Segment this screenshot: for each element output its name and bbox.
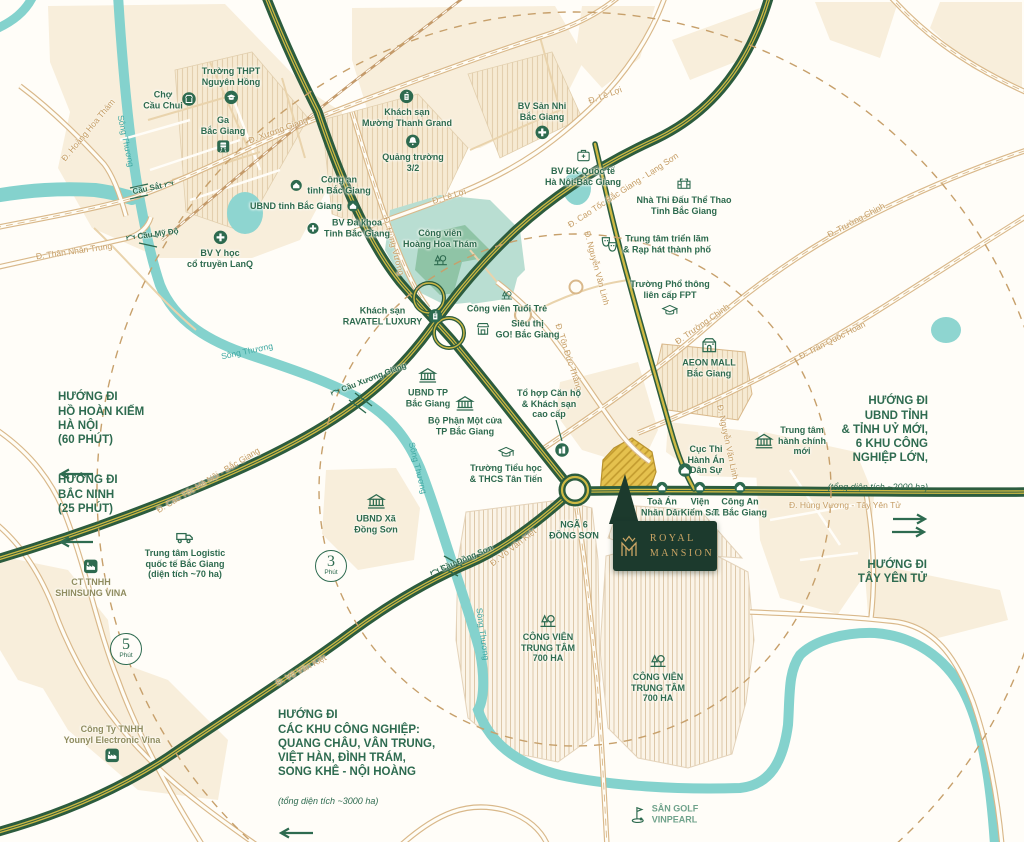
hospital-cross-icon — [306, 221, 320, 235]
factory-icon — [103, 747, 120, 764]
right-arrow-icon — [891, 526, 927, 538]
bridge-icon — [125, 231, 136, 242]
graduation-cap-icon — [498, 444, 515, 461]
poi-bo-phan-mot-cua: Bộ Phận Một cửa TP Bắc Giang — [428, 393, 502, 436]
poi-muong-thanh-grand: Khách sạn Mường Thanh Grand — [362, 88, 452, 128]
poi-ubnd-xa-dong-son: UBND Xã Đồng Sơn — [354, 491, 397, 534]
hotel-icon — [398, 88, 415, 105]
tree-icon — [648, 650, 668, 670]
royal-mansion-logo: ROYAL MANSION — [613, 521, 717, 571]
house-icon — [693, 480, 707, 494]
poi-aeon-mall: AEON MALL Bắc Giang — [682, 335, 736, 378]
left-arrow-icon — [278, 827, 314, 839]
poi-bv-da-khoa: BV Đa khoa Tỉnh Bắc Giang — [306, 217, 390, 238]
poi-cong-an-tinh: Công an tỉnh Bắc Giang — [289, 174, 371, 195]
golf-flag-icon — [628, 804, 648, 824]
poi-cong-vien-hoang-hoa-tham: Công viên Hoàng Hoa Thám — [403, 228, 477, 268]
government-building-icon — [366, 491, 386, 511]
poi-cong-an-t-bac-giang: Công An T. Bắc Giang — [713, 480, 767, 517]
poi-shinsung-vina: CT TNHH SHINSUNG VINA — [55, 558, 127, 598]
mall-icon — [699, 335, 719, 355]
poi-san-golf-vinpearl: SÂN GOLF VINPEARL — [628, 803, 699, 824]
location-map: Chợ Cầu Chui Trường THPT Nguyên Hồng Ga … — [0, 0, 1024, 842]
poi-truong-thpt-nguyen-hong: Trường THPT Nguyên Hồng — [202, 66, 261, 106]
bridge-icon — [163, 178, 175, 190]
direction-bac-ninh: HƯỚNG ĐI BẮC NINH (25 PHÚT) — [58, 459, 118, 563]
poi-truong-tan-tien: Trường Tiểu học & THCS Tân Tiến — [470, 444, 543, 484]
house-icon — [289, 178, 303, 192]
callout-pointer — [598, 468, 648, 528]
poi-nha-thi-dau: Nhà Thi Đấu Thể Thao Tỉnh Bắc Giang — [636, 176, 731, 216]
poi-cong-vien-trung-tam-2: CÔNG VIÊN TRUNG TÂM 700 HA — [631, 650, 685, 704]
hospital-cross-icon — [533, 124, 550, 141]
tree-icon — [538, 610, 558, 630]
hotel-icon — [426, 308, 443, 325]
poi-ubnd-tinh: UBND tỉnh Bắc Giang — [250, 199, 360, 213]
school-icon — [223, 89, 240, 106]
hospital-cross-icon — [211, 229, 228, 246]
tree-icon — [500, 288, 514, 302]
left-arrow-icon — [58, 536, 94, 548]
poi-younyl-electronic: Công Ty TNHH Younyl Electronic Vina — [64, 724, 161, 764]
badge-5-minutes: 5 Phút — [110, 633, 142, 665]
house-icon — [346, 199, 360, 213]
poi-logistic-center: Trung tâm Logistic quốc tế Bắc Giang (di… — [145, 526, 226, 580]
government-building-icon — [418, 365, 438, 385]
poi-bv-san-nhi: BV Sản Nhi Bắc Giang — [518, 101, 567, 141]
royal-mansion-monogram-icon — [616, 533, 642, 559]
poi-cong-vien-trung-tam-1: CÔNG VIÊN TRUNG TÂM 700 HA — [521, 610, 575, 664]
poi-trien-lam-rap-hat: Trung tâm triển lãm & Rạp hát thành phố — [599, 233, 711, 254]
poi-ga-bac-giang: Ga Bắc Giang — [201, 115, 246, 155]
poi-to-hop-can-ho: Tổ hợp Căn hộ & Khách sạn cao cấp — [517, 388, 581, 420]
apartment-icon — [554, 442, 571, 459]
truck-icon — [175, 526, 195, 546]
theater-masks-icon — [599, 234, 619, 254]
bell-icon — [404, 133, 421, 150]
government-building-icon — [754, 431, 774, 451]
graduation-cap-icon — [662, 302, 679, 319]
poi-cho-cau-chui: Chợ Cầu Chui — [143, 89, 183, 110]
poi-bv-quoc-te: BV ĐK Quốc tế Hà Nội-Bắc Giang — [545, 147, 621, 187]
poi-truong-fpt: Trường Phổ thông liên cấp FPT — [630, 279, 709, 319]
badge-3-minutes: 3 Phút — [315, 550, 347, 582]
tree-icon — [431, 251, 448, 268]
house-icon — [655, 480, 669, 494]
house-icon — [677, 462, 694, 479]
stadium-icon — [675, 176, 692, 193]
poi-cong-vien-tuoi-tre: Công viên Tuổi Trẻ — [467, 288, 547, 315]
government-building-icon — [455, 393, 475, 413]
poi-go-bac-giang: Siêu thị GO! Bắc Giang — [474, 318, 559, 339]
poi-bv-y-hoc: BV Y học cổ truyền LanQ — [187, 229, 253, 269]
medkit-icon — [574, 147, 591, 164]
direction-tay-yen-tu: HƯỚNG ĐI TÂY YÊN TỬ — [858, 512, 927, 600]
house-icon — [733, 480, 747, 494]
poi-ravatel-luxury: Khách sạn RAVATEL LUXURY — [343, 305, 444, 326]
poi-nga-6-dong-son: NGÃ 6 ĐỒNG SƠN — [549, 519, 599, 540]
market-icon — [181, 91, 198, 108]
poi-trung-tam-hanh-chinh: Trung tâm hành chính mới — [754, 425, 826, 457]
store-icon — [474, 321, 491, 338]
direction-khu-cong-nghiep: HƯỚNG ĐI CÁC KHU CÔNG NGHIỆP: QUANG CHÂU… — [278, 694, 435, 842]
train-station-icon — [214, 138, 231, 155]
royal-mansion-wordmark: ROYAL MANSION — [650, 531, 714, 561]
poi-quang-truong-3-2: Quảng trường 3/2 — [382, 133, 443, 173]
